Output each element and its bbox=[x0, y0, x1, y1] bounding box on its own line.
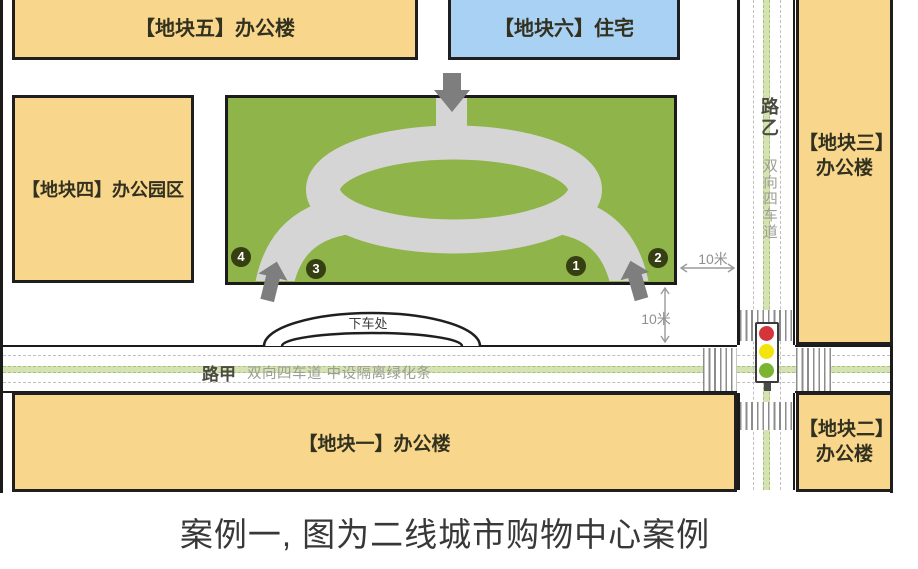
road-jia-description-label: 双向四车道 中设隔离绿化条 bbox=[247, 362, 432, 383]
road-yi-edge bbox=[793, 393, 796, 490]
plot2-label: 【地块二】 办公楼 bbox=[799, 417, 890, 467]
entrance-marker-1: 1 bbox=[566, 256, 586, 276]
road-yi-edge bbox=[793, 0, 796, 345]
plot1-label: 【地块一】办公楼 bbox=[298, 429, 450, 456]
crosswalk-west bbox=[703, 348, 737, 391]
plot3-office-block: 【地块三】 办公楼 bbox=[796, 0, 893, 345]
road-jia-name-label: 路甲 bbox=[202, 360, 236, 385]
crosswalk-south bbox=[740, 402, 793, 430]
plot5-label: 【地块五】办公楼 bbox=[135, 12, 295, 41]
traffic-light-pole bbox=[764, 383, 771, 391]
plot3-label: 【地块三】 办公楼 bbox=[799, 131, 890, 181]
plot4-label: 【地块四】办公园区 bbox=[22, 176, 184, 202]
internal-ring-road bbox=[228, 98, 673, 281]
plot2-office-block: 【地块二】 办公楼 bbox=[796, 392, 893, 492]
south-gap-dimension-label: 10米 bbox=[631, 309, 681, 329]
dropoff-label: 下车处 bbox=[338, 313, 398, 332]
road-yi-name-label: 路乙 bbox=[756, 97, 782, 139]
signal-yellow-light bbox=[759, 344, 774, 359]
plot6-residential-block: 【地块六】住宅 bbox=[448, 0, 680, 60]
east-gap-dimension-label: 10米 bbox=[688, 249, 738, 269]
road-yi-edge bbox=[737, 0, 740, 345]
signal-red-light bbox=[759, 326, 774, 341]
traffic-light bbox=[755, 322, 779, 383]
signal-green-light bbox=[759, 363, 774, 378]
entrance-marker-4: 4 bbox=[231, 247, 251, 267]
plot1-office-block: 【地块一】办公楼 bbox=[12, 392, 737, 492]
plot5-office-block: 【地块五】办公楼 bbox=[12, 0, 418, 60]
road-yi-description-label: 双向四车道 bbox=[759, 158, 780, 241]
figure-caption: 案例一, 图为二线城市购物中心案例 bbox=[0, 508, 890, 556]
plan-frame-left bbox=[0, 0, 3, 493]
road-yi-edge bbox=[737, 393, 740, 490]
site-plan-diagram: 【地块五】办公楼 【地块六】住宅 【地块四】办公园区 【地块三】 办公楼 【地块… bbox=[0, 0, 918, 569]
mall-site-area bbox=[225, 95, 677, 285]
plot4-office-park-block: 【地块四】办公园区 bbox=[12, 95, 194, 283]
plot6-label: 【地块六】住宅 bbox=[494, 12, 634, 41]
entrance-marker-2: 2 bbox=[648, 248, 668, 268]
crosswalk-east bbox=[796, 348, 831, 391]
entrance-marker-3: 3 bbox=[306, 259, 326, 279]
